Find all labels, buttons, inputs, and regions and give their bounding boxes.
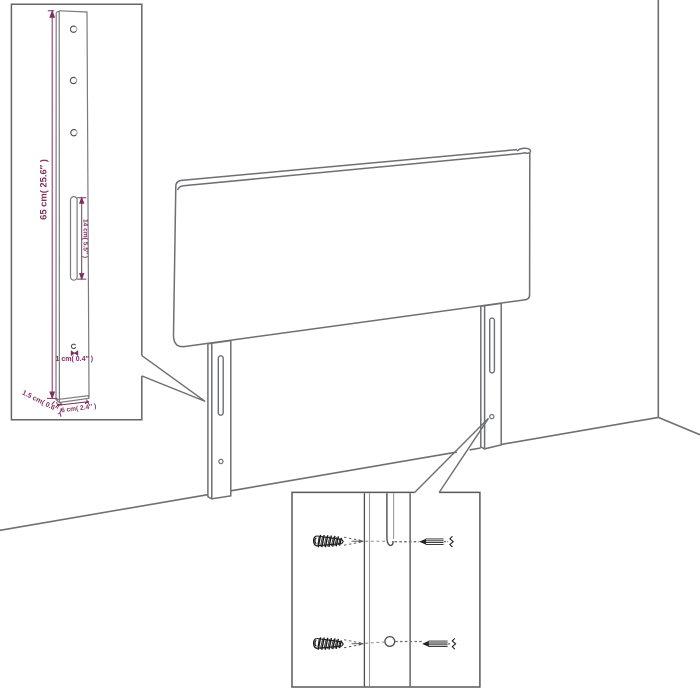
svg-text:14 cm( 5.5″ ): 14 cm( 5.5″ ) (81, 219, 88, 258)
svg-text:1 cm( 0.4″ ): 1 cm( 0.4″ ) (56, 356, 94, 363)
svg-text:65 cm( 25.6″ ): 65 cm( 25.6″ ) (37, 159, 48, 220)
